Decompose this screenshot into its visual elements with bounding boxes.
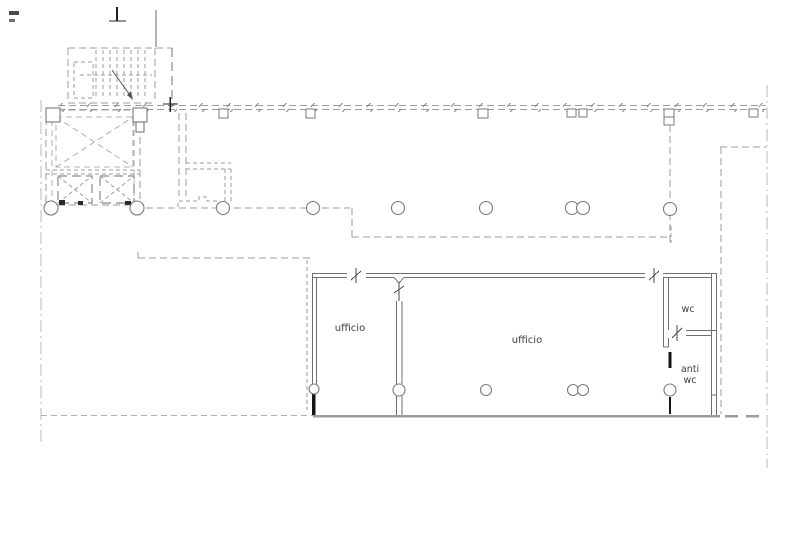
columns-mid-row	[44, 201, 677, 216]
door-tick-wc-entry	[649, 268, 659, 283]
elevator-shafts	[46, 108, 147, 205]
right-dashed-outline	[720, 147, 766, 414]
room-label-office-main: ufficio	[512, 335, 542, 346]
lift-cab-right	[100, 176, 134, 203]
door-tick-wc-inner	[672, 325, 682, 341]
columns-lower-row	[309, 384, 676, 396]
floor-plan-drawing: ufficio ufficio wc anti wc	[0, 0, 800, 533]
grid-lines	[41, 85, 767, 468]
large-shaft	[56, 117, 133, 167]
room-label-anti-wc-line1: anti	[681, 364, 699, 375]
room-label-wc: wc	[682, 304, 695, 315]
partition-door-symbol	[394, 283, 404, 301]
staircase	[68, 7, 172, 107]
office-upper-dashed	[138, 252, 310, 410]
section-marker	[109, 7, 126, 21]
door-tick-left	[351, 268, 361, 283]
partition-top-notch	[394, 278, 404, 284]
bottom-wall	[41, 416, 766, 417]
floor-plan-canvas: ufficio ufficio wc anti wc	[0, 0, 800, 533]
room-labels: ufficio ufficio wc anti wc	[335, 304, 699, 386]
left-wall-heavy-segment	[312, 394, 316, 416]
top-band	[58, 103, 766, 125]
anti-wc-fixture	[669, 352, 672, 414]
room-label-anti-wc-line2: wc	[684, 375, 697, 386]
room-label-office-left: ufficio	[335, 323, 365, 334]
scan-corner-marks	[9, 11, 19, 22]
lift-cab-left	[58, 176, 92, 203]
